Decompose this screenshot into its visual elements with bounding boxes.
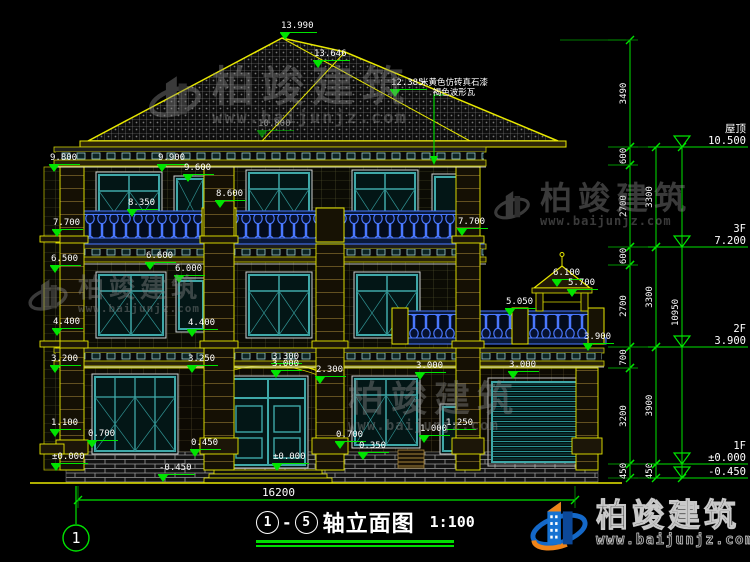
elevation-triangle-icon	[127, 210, 137, 217]
level-triangle-icon	[674, 453, 690, 464]
axis-circle-from: 1	[256, 511, 279, 534]
elevation-value: 13.990	[280, 21, 317, 33]
elevation-value: 6.500	[50, 254, 81, 266]
elevation-marker: 4.400	[52, 317, 83, 336]
elevation-value: 6.100	[552, 268, 583, 280]
elevation-triangle-icon	[187, 366, 197, 373]
elevation-value: 4.400	[52, 317, 83, 329]
elevation-marker: ±0.000	[51, 452, 88, 471]
elevation-triangle-icon	[52, 230, 62, 237]
watermark-name: 柏竣建筑	[540, 182, 692, 214]
dimension-value: 700	[619, 349, 629, 365]
elevation-marker: 1.100	[50, 418, 81, 437]
window-3f-small	[174, 176, 206, 232]
elevation-marker: 0.700	[87, 429, 118, 448]
dimension-value: 600	[619, 148, 629, 164]
elevation-marker: 2.300	[315, 365, 346, 384]
drawing-title: 1 - 5 轴立面图 1:100	[256, 506, 475, 538]
material-note-line2: 褐色波形瓦	[420, 88, 488, 98]
windows-3f	[96, 170, 464, 238]
elevation-triangle-icon	[335, 442, 345, 449]
dimension-value: 10950	[671, 299, 681, 326]
elevation-marker: 8.350	[127, 198, 158, 217]
elevation-value: 3.250	[187, 354, 218, 366]
elevation-triangle-icon	[49, 165, 59, 172]
elevation-triangle-icon	[50, 366, 60, 373]
elevation-value: 3.000	[415, 361, 446, 373]
elevation-marker: 3.200	[50, 354, 81, 373]
level-triangle-icon	[674, 336, 690, 347]
watermark: 柏竣建筑 www.baijunjz.com	[26, 274, 202, 318]
elevation-marker: ±0.000	[272, 452, 309, 471]
elevation-triangle-icon	[567, 290, 577, 297]
elevation-value: 3.000	[508, 360, 539, 372]
brand-logo-icon	[528, 494, 590, 556]
elevation-marker: 3.250	[187, 354, 218, 373]
elevation-value: 8.350	[127, 198, 158, 210]
elevation-value: 3.000	[271, 359, 302, 371]
window-3f-edge	[432, 174, 464, 232]
elevation-value: 3.300	[271, 352, 302, 364]
dimension-value: 3200	[619, 405, 629, 427]
cornice-2f	[54, 348, 604, 367]
elevation-value: 1.100	[50, 418, 81, 430]
elevation-value: 13.646	[313, 49, 350, 61]
axis-bubble-number: 1	[71, 529, 80, 547]
elevation-triangle-icon	[272, 464, 282, 471]
balustrade-3f	[62, 208, 484, 244]
brand-url: www.baijunjz.com	[596, 531, 750, 551]
cad-elevation-drawing: 3490600270060027007003200450330033003900…	[0, 0, 750, 562]
watermark-name: 柏竣建筑	[212, 66, 412, 108]
elevation-triangle-icon	[315, 377, 325, 384]
level-triangle-icon	[674, 467, 690, 478]
elevation-value: 5.050	[505, 297, 536, 309]
elevation-marker: 3.000	[415, 361, 446, 380]
elevation-triangle-icon	[215, 201, 225, 208]
elevation-value: 3.900	[583, 332, 614, 344]
watermark-url: www.baijunjz.com	[78, 302, 202, 316]
elevation-value: 5.700	[567, 278, 598, 290]
elevation-value: 0.450	[190, 438, 221, 450]
title-dash: -	[282, 513, 292, 532]
entrance-door	[210, 362, 326, 468]
watermark: 柏竣建筑 www.baijunjz.com	[348, 382, 520, 436]
elevation-triangle-icon	[457, 229, 467, 236]
title-scale: 1:100	[430, 513, 475, 531]
elevation-value: 8.600	[215, 189, 246, 201]
axis-bubble	[63, 525, 89, 551]
elevation-triangle-icon	[187, 330, 197, 337]
watermark-url: www.baijunjz.com	[348, 418, 520, 436]
level-name: 3F	[733, 223, 746, 235]
watermark-logo-icon	[26, 274, 70, 318]
elevation-marker: 7.700	[52, 218, 83, 237]
watermark: 柏竣建筑 www.baijunjz.com	[146, 66, 412, 129]
elevation-marker: 3.000	[508, 360, 539, 379]
level-name: 2F	[733, 323, 746, 335]
elevation-triangle-icon	[158, 475, 168, 482]
elevation-marker: 0.350	[358, 441, 389, 460]
elevation-triangle-icon	[190, 450, 200, 457]
elevation-marker: 3.300	[271, 352, 302, 364]
elevation-triangle-icon	[358, 453, 368, 460]
watermark: 柏竣建筑 www.baijunjz.com	[492, 182, 692, 229]
watermark-url: www.baijunjz.com	[212, 108, 412, 129]
level-value: -0.450	[708, 466, 746, 478]
elevation-triangle-icon	[280, 33, 290, 40]
dimension-value: 3300	[645, 286, 655, 308]
brick-base	[66, 452, 598, 482]
elevation-value: 0.700	[87, 429, 118, 441]
elevation-triangle-icon	[552, 280, 562, 287]
eave-fascia	[80, 141, 566, 147]
balustrade-terrace	[392, 308, 606, 344]
watermark-name: 柏竣建筑	[78, 276, 202, 302]
elevation-marker: 6.600	[145, 251, 176, 270]
axis-circle-to: 5	[295, 511, 318, 534]
elevation-triangle-icon	[183, 175, 193, 182]
elevation-triangle-icon	[508, 372, 518, 379]
elevation-value: 9.600	[183, 163, 214, 175]
elevation-triangle-icon	[505, 309, 515, 316]
elevation-marker: 0.450	[190, 438, 221, 457]
louver-vent	[398, 450, 424, 468]
elevation-triangle-icon	[87, 441, 97, 448]
elevation-marker: -0.450	[158, 463, 195, 482]
elevation-triangle-icon	[419, 436, 429, 443]
elevation-value: 9.900	[157, 153, 188, 165]
level-value: 3.900	[714, 335, 746, 347]
eave-cornice	[54, 147, 486, 167]
level-name: 屋顶	[725, 123, 746, 135]
note-leader	[430, 95, 444, 165]
dimension-value: 3490	[619, 83, 629, 105]
material-note-line1: 米黄色仿砖真石漆	[420, 78, 488, 88]
elevation-value: 9.800	[49, 153, 80, 165]
title-underline-2	[256, 545, 454, 547]
dimension-value: 3900	[645, 395, 655, 417]
elevation-value: 7.700	[52, 218, 83, 230]
level-value: ±0.000	[708, 452, 746, 464]
elevation-value: 6.600	[145, 251, 176, 263]
elevation-triangle-icon	[257, 131, 267, 138]
dimension-value: 450	[645, 463, 655, 479]
watermark-url: www.baijunjz.com	[540, 214, 692, 229]
elevation-marker: 3.900	[583, 332, 614, 351]
elevation-marker: 8.600	[215, 189, 246, 208]
cornice-3f-balcony	[60, 244, 486, 264]
elevation-value: 7.700	[457, 217, 488, 229]
watermark-name: 柏竣建筑	[348, 382, 520, 418]
window-3f-left	[96, 172, 162, 236]
elevation-value: 4.400	[187, 318, 218, 330]
elevation-marker: 3.000	[271, 359, 302, 378]
elevation-marker: 4.400	[187, 318, 218, 337]
window-3f-right	[352, 170, 418, 238]
elevation-value: 2.300	[315, 365, 346, 377]
dimension-value: 600	[619, 248, 629, 264]
left-return-wall	[44, 167, 60, 470]
elevation-marker: 9.600	[183, 163, 214, 182]
elevation-marker: 6.500	[50, 254, 81, 273]
elevation-triangle-icon	[50, 430, 60, 437]
elevation-marker: 7.700	[457, 217, 488, 236]
elevation-value: 3.200	[50, 354, 81, 366]
elevation-marker: 6.100	[552, 268, 583, 287]
elevation-triangle-icon	[52, 329, 62, 336]
title-label: 轴立面图	[323, 506, 415, 538]
elevation-marker: 13.990	[280, 21, 317, 40]
cupola	[532, 253, 592, 312]
elevation-marker: 5.050	[505, 297, 536, 316]
elevation-value: ±0.000	[51, 452, 88, 464]
level-triangle-icon	[674, 236, 690, 247]
material-note: 米黄色仿砖真石漆 褐色波形瓦	[420, 78, 488, 98]
ground-dimension-value: 16200	[262, 486, 295, 499]
window-2f-right	[354, 272, 420, 338]
window-3f-center	[246, 170, 312, 238]
level-name: 1F	[733, 440, 746, 452]
elevation-triangle-icon	[271, 371, 281, 378]
elevation-triangle-icon	[583, 344, 593, 351]
entrance-steps	[204, 470, 332, 483]
watermark-logo-icon	[146, 69, 204, 127]
dimension-value: 450	[619, 463, 629, 479]
elevation-marker: 9.800	[49, 153, 80, 172]
elevation-triangle-icon	[50, 266, 60, 273]
brand-logo: 柏竣建筑 www.baijunjz.com	[528, 494, 750, 556]
elevation-value: ±0.000	[272, 452, 309, 464]
dimension-value: 2700	[619, 295, 629, 317]
elevation-marker: 9.900	[157, 153, 188, 172]
level-value: 7.200	[714, 235, 746, 247]
elevation-marker: 5.700	[567, 278, 598, 297]
elevation-value: 0.350	[358, 441, 389, 453]
title-underline	[256, 540, 454, 543]
brand-name: 柏竣建筑	[596, 499, 750, 531]
level-value: 10.500	[708, 135, 746, 147]
window-2f-center	[246, 272, 312, 338]
elevation-triangle-icon	[51, 464, 61, 471]
elevation-triangle-icon	[145, 263, 155, 270]
level-triangle-icon	[674, 136, 690, 147]
watermark-logo-icon	[492, 186, 532, 226]
elevation-triangle-icon	[157, 165, 167, 172]
window-1f-left	[92, 374, 178, 454]
elevation-value: -0.450	[158, 463, 195, 475]
